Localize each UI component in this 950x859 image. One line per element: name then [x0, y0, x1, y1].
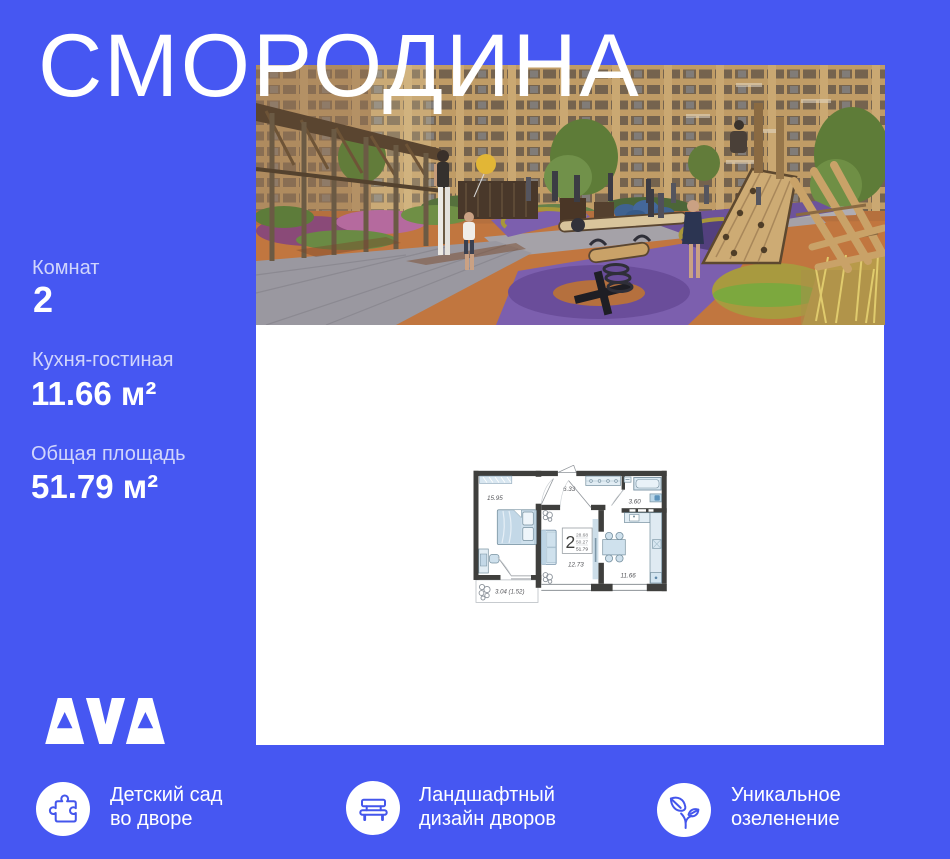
svg-text:51.79: 51.79	[576, 547, 588, 553]
svg-text:12.73: 12.73	[568, 562, 584, 569]
svg-text:15.95: 15.95	[487, 495, 503, 502]
svg-text:2: 2	[566, 532, 576, 552]
svg-text:28.68: 28.68	[576, 533, 588, 539]
svg-text:3.04 (1.52): 3.04 (1.52)	[495, 589, 524, 596]
svg-text:11.66: 11.66	[621, 573, 637, 580]
svg-text:50.27: 50.27	[576, 540, 588, 546]
svg-text:3.60: 3.60	[629, 499, 642, 506]
